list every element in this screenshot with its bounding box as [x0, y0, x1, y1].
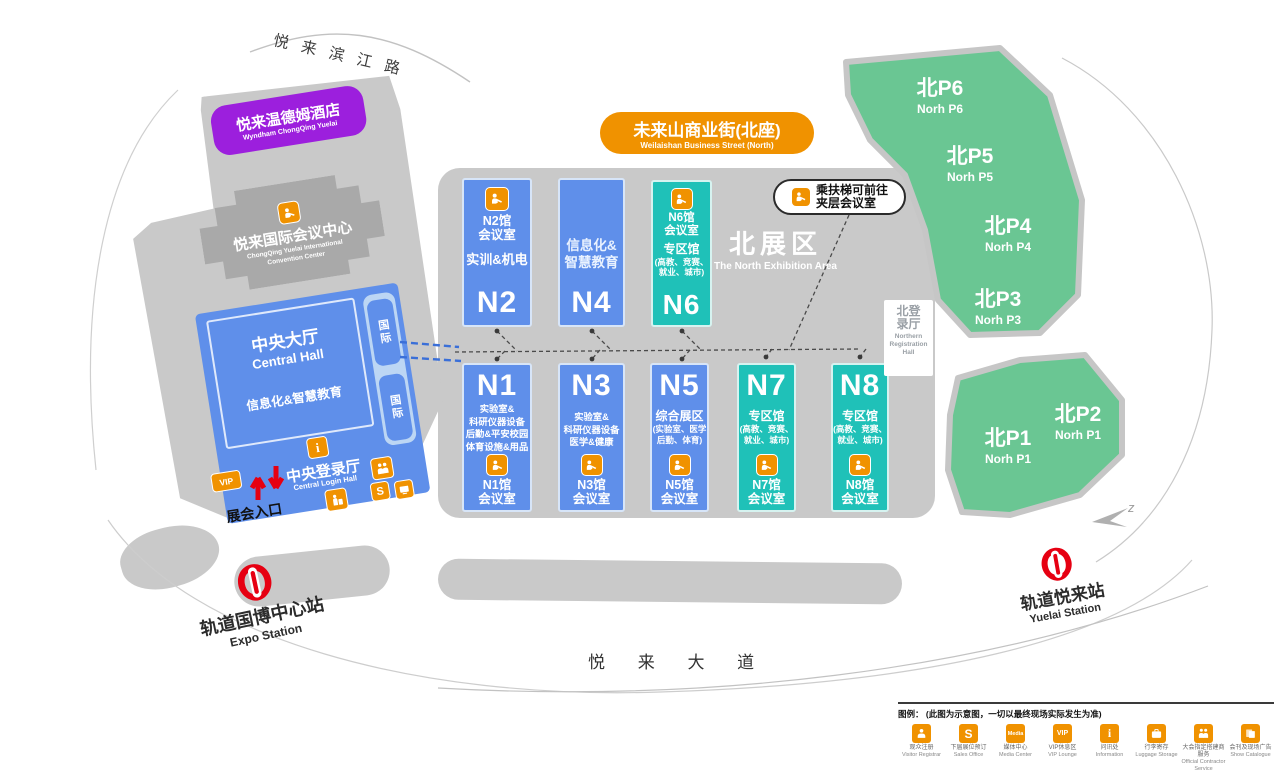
meeting-room-icon — [669, 454, 691, 476]
hall-theme: 专区馆 — [842, 409, 878, 424]
information-icon: i — [1100, 724, 1119, 743]
sales-office-icon: S — [369, 480, 391, 502]
hall-theme: 综合展区 — [655, 409, 703, 424]
international-zone-1: 国际 — [366, 298, 402, 367]
hall-N4: 信息化& 智慧教育 N4 — [558, 178, 625, 327]
convention-complex: 悦来温德姆酒店 Wyndham ChongQing Yuelai 悦来国际会议中… — [110, 66, 464, 538]
meeting-room-icon — [581, 454, 603, 476]
hall-N7: N7 专区馆 (高教、竞赛、 就业、城市) N7馆 会议室 — [737, 363, 796, 512]
hall-meeting-label: N1馆 会议室 — [478, 478, 516, 506]
parking-label-p5: 北P5 Norh P5 — [930, 140, 1010, 184]
media-center-icon — [393, 479, 415, 501]
north-area-label: 北展区 The North Exhibition Area — [693, 224, 858, 272]
legend-item-media-center: Media 媒体中心 Media Center — [992, 724, 1039, 770]
hall-meeting-label: N5馆 会议室 — [661, 478, 699, 506]
parking-label-p2: 北P2 Norh P1 — [1038, 398, 1118, 442]
parking-label-p3: 北P3 Norh P3 — [958, 283, 1038, 327]
legend-item-information: i 问讯处 Information — [1086, 724, 1133, 770]
meeting-room-icon — [791, 187, 811, 207]
north-area-cn: 北展区 — [693, 224, 858, 261]
hall-meeting-label: N6馆 会议室 — [664, 212, 699, 238]
contractor-service-icon — [370, 456, 395, 481]
hall-theme: 专区馆 — [663, 242, 699, 257]
vip-lounge-icon: VIP — [1053, 724, 1072, 743]
hall-subtheme: (实验室、医学 后勤、体育) — [653, 424, 707, 445]
central-hall: 中央大厅 Central Hall 信息化&智慧教育 国际 国际 i 中央登录厅… — [195, 283, 431, 524]
hall-subtheme: (高教、竞赛、 就业、城市) — [833, 424, 887, 445]
hall-meeting-label: N2馆 会议室 — [478, 214, 516, 242]
hall-N3: N3 实验室& 科研仪器设备 医学&健康 N3馆 会议室 — [558, 363, 625, 512]
hall-id: N1 — [477, 369, 517, 403]
northern-registration-hall: 北登 录厅 Northern Registration Hall — [884, 300, 933, 376]
parking-label-p1: 北P1 Norh P1 — [968, 422, 1048, 466]
contractor-service-icon — [1194, 724, 1213, 743]
rail-transit-logo — [231, 559, 278, 606]
meeting-room-icon — [485, 187, 509, 211]
media-center-icon: Media — [1006, 724, 1025, 743]
parking-label-p6: 北P6 Norh P6 — [900, 72, 980, 116]
legend-item-vip-lounge: VIP VIP休息区 VIP Lounge — [1039, 724, 1086, 770]
visitor-registration-icon — [912, 724, 931, 743]
legend-item-contractor-service: 大会指定搭建商服务 Official Contractor Service — [1180, 724, 1227, 770]
hall-id: N5 — [659, 369, 699, 403]
hall-id: N3 — [571, 369, 611, 403]
avenue-road-label: 悦 来 大 道 — [588, 648, 768, 673]
hall-subtheme: (高教、竞赛、 就业、城市) — [740, 424, 794, 445]
business-street-banner: 未来山商业街(北座) Weilaishan Business Street (N… — [600, 112, 814, 154]
legend-title: 图例： (此图为示意图，一切以最终现场实际发生为准) — [898, 708, 1274, 720]
hall-theme: 实验室& 科研仪器设备 后勤&平安校园 体育设施&用品 — [466, 403, 529, 453]
road-median-blob — [438, 559, 902, 605]
hall-subtheme: (高教、竞赛、 就业、城市) — [655, 257, 709, 278]
north-reg-cn: 北登 录厅 — [884, 305, 933, 331]
meeting-room-icon — [277, 200, 302, 225]
hall-N1: N1 实验室& 科研仪器设备 后勤&平安校园 体育设施&用品 N1馆 会议室 — [462, 363, 532, 512]
parking-label-p4: 北P4 Norh P4 — [968, 210, 1048, 254]
central-hall-inner: 中央大厅 Central Hall 信息化&智慧教育 — [206, 297, 374, 449]
hall-id: N6 — [663, 289, 701, 321]
yuelai-station: 轨道悦来站 Yuelai Station — [975, 533, 1145, 634]
meeting-room-icon — [849, 454, 871, 476]
hall-id: N4 — [571, 286, 611, 320]
north-area-en: The North Exhibition Area — [693, 261, 858, 272]
hall-meeting-label: N7馆 会议室 — [748, 478, 786, 506]
hall-id: N7 — [746, 369, 786, 403]
escalator-note: 乘扶梯可前往 夹层会议室 — [773, 179, 906, 215]
legend-item-visitor-registration: 观众注册 Visitor Registrar — [898, 724, 945, 770]
international-zone-2: 国际 — [378, 373, 414, 442]
hall-meeting-label: N3馆 会议室 — [573, 478, 611, 506]
hall-N2: N2馆 会议室 实训&机电 N2 — [462, 178, 532, 327]
hall-theme: 实验室& 科研仪器设备 医学&健康 — [564, 411, 620, 449]
hall-theme: 实训&机电 — [466, 252, 527, 268]
legend-item-sales-office: S 下届展位预订 Sales Office — [945, 724, 992, 770]
hall-id: N2 — [477, 286, 517, 320]
central-hall-theme: 信息化&智慧教育 — [220, 377, 367, 419]
luggage-storage-icon — [1147, 724, 1166, 743]
sales-office-icon: S — [959, 724, 978, 743]
hall-theme: 信息化& 智慧教育 — [565, 238, 619, 272]
compass-letter: z — [1128, 500, 1135, 515]
meeting-room-icon — [671, 188, 693, 210]
legend-item-show-catalogue: 会刊及现场广告 Show Catalogue — [1227, 724, 1274, 770]
legend-item-luggage-storage: 行李寄存 Luggage Storage — [1133, 724, 1180, 770]
show-catalogue-icon — [1241, 724, 1260, 743]
meeting-room-icon — [756, 454, 778, 476]
rail-transit-logo — [1036, 543, 1078, 585]
hall-id: N8 — [840, 369, 880, 403]
hall-meeting-label: N8馆 会议室 — [841, 478, 879, 506]
north-reg-en: Northern Registration Hall — [884, 333, 933, 356]
street-cn: 未来山商业街(北座) — [633, 116, 780, 141]
street-en: Weilaishan Business Street (North) — [640, 141, 773, 150]
hall-N6: N6馆 会议室 专区馆 (高教、竞赛、 就业、城市) N6 — [651, 180, 712, 327]
compass-arrow-icon — [1092, 508, 1128, 527]
hall-theme: 专区馆 — [748, 409, 784, 424]
hall-N5: N5 综合展区 (实验室、医学 后勤、体育) N5馆 会议室 — [650, 363, 709, 512]
legend: 图例： (此图为示意图，一切以最终现场实际发生为准) 观众注册 Visitor … — [898, 702, 1274, 770]
escalator-note-text: 乘扶梯可前往 夹层会议室 — [816, 184, 888, 210]
meeting-room-icon — [486, 454, 508, 476]
luggage-storage-icon — [324, 487, 349, 512]
hall-N8: N8 专区馆 (高教、竞赛、 就业、城市) N8馆 会议室 — [831, 363, 889, 512]
venue-map: 悦来滨江路 悦 来 大 道 悦来温德姆酒店 Wyndham ChongQing … — [0, 0, 1280, 770]
information-icon: i — [306, 435, 330, 459]
